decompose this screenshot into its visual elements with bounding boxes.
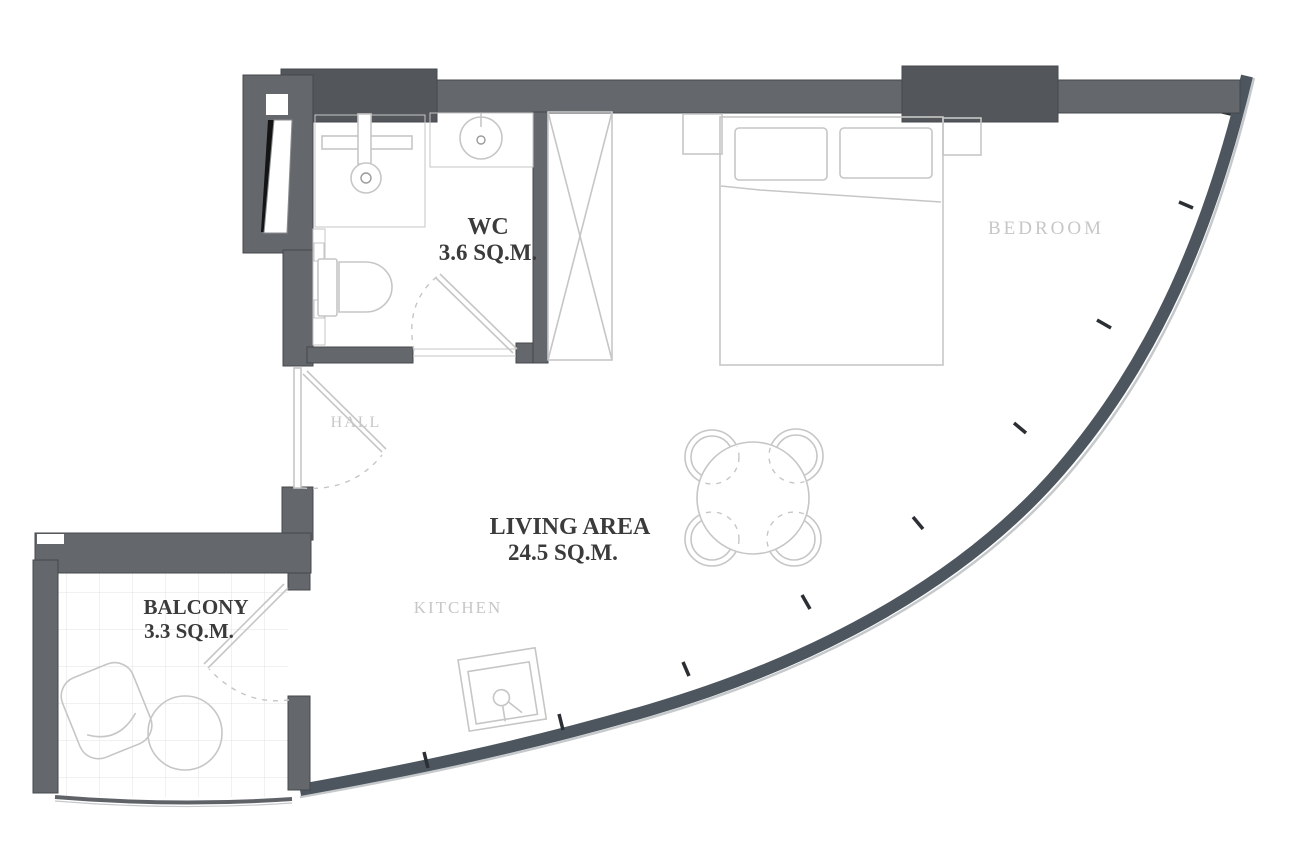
- kitchen-label: KITCHEN: [414, 598, 503, 617]
- bedroom-label: BEDROOM: [988, 218, 1104, 239]
- hall-label: HALL: [331, 414, 382, 431]
- left-corner-block: [243, 75, 313, 253]
- balcony-label: BALCONY: [143, 595, 248, 619]
- bed-icon: [720, 117, 943, 365]
- wc-door: [412, 274, 517, 356]
- balcony-wall-notch: [37, 534, 64, 544]
- wc-label: WC: [467, 214, 508, 240]
- living-area-size: 24.5 SQ.M.: [508, 540, 618, 565]
- wc-right-wall: [533, 112, 548, 363]
- blanket-fold: [721, 186, 941, 202]
- bedroom-furniture: [683, 114, 981, 365]
- wc-area-label: 3.6 SQ.M.: [439, 240, 537, 265]
- balcony-railing: [55, 797, 292, 807]
- balcony-right-wall-lower: [288, 696, 310, 790]
- floor-plan: WC 3.6 SQ.M. BEDROOM HALL KITCHEN LIVING…: [0, 0, 1300, 846]
- top-right-pier: [902, 66, 1058, 122]
- shower-arm: [358, 114, 371, 164]
- wardrobe-icon: [548, 112, 612, 360]
- balcony-area-label: 3.3 SQ.M.: [144, 619, 234, 643]
- dining-table-icon: [697, 442, 809, 554]
- balcony-top-wall: [35, 533, 311, 573]
- nightstand-right: [943, 118, 981, 155]
- shower-head-icon: [351, 163, 381, 193]
- entry-wall-block: [282, 487, 313, 540]
- wc-bottom-wall: [307, 347, 413, 363]
- living-area-label: LIVING AREA: [490, 514, 651, 540]
- balcony-left-wall: [33, 560, 58, 793]
- nightstand-left: [683, 114, 722, 154]
- pillow-right: [840, 128, 932, 178]
- pillow-left: [735, 128, 827, 180]
- floor-plan-drawing: WC 3.6 SQ.M. BEDROOM HALL KITCHEN LIVING…: [0, 0, 1300, 846]
- balcony-right-wall-upper: [288, 573, 310, 590]
- dining-set: [685, 429, 823, 566]
- toilet-icon: [318, 259, 392, 316]
- kitchen-sink-icon: [458, 648, 546, 731]
